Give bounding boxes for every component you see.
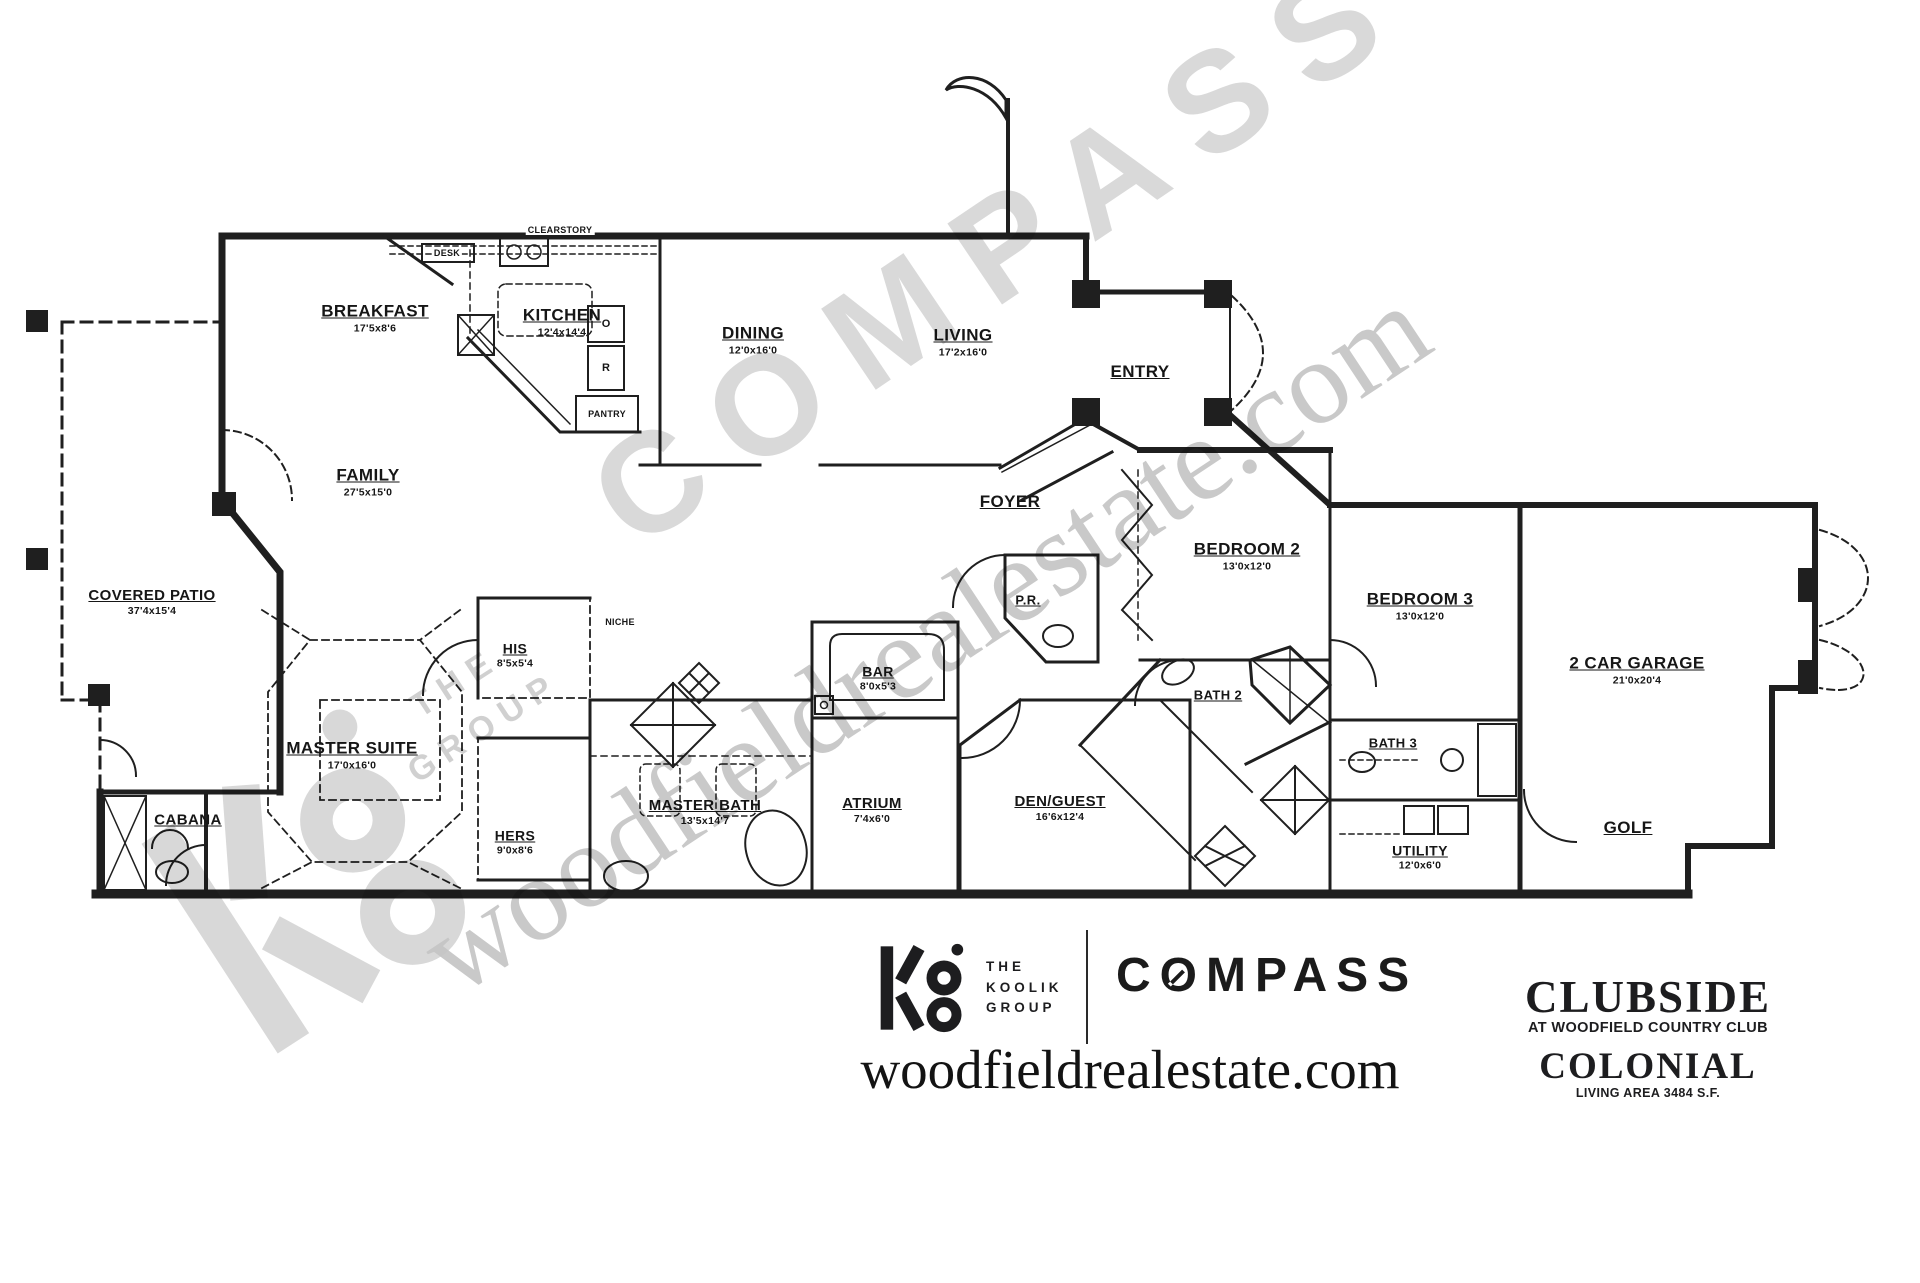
room-label-garage: 2 CAR GARAGE21'0x20'4 [1569,654,1704,687]
floorplan-page: BREAKFAST17'5x8'6 KITCHEN12'4x14'4 DININ… [0,0,1920,1283]
room-label-atrium: ATRIUM7'4x6'0 [842,795,902,825]
note-oven: O [602,318,611,330]
note-pantry: PANTRY [586,409,628,419]
compass-logo: COMPASS [1116,948,1418,1003]
bedroom3-walls [1330,505,1520,894]
model-name: COLONIAL [1468,1048,1828,1085]
room-label-entry: ENTRY [1111,362,1170,382]
room-label-master-bath: MASTER BATH13'5x14'7 [649,797,761,827]
master-bath-detail [590,663,815,894]
community-subtitle: AT WOODFIELD COUNTRY CLUB [1468,1020,1828,1036]
kitchen-detail [458,236,660,465]
living-area-text: LIVING AREA 3484 S.F. [1468,1086,1828,1100]
cabana-detail [100,792,206,894]
note-clearstory: CLEARSTORY [526,225,595,235]
room-label-foyer: FOYER [980,492,1041,512]
koolik-k8-icon [878,938,970,1038]
room-label-cabana: CABANA [154,812,221,829]
plan-title-block: CLUBSIDE AT WOODFIELD COUNTRY CLUB COLON… [1468,975,1828,1100]
room-label-bath2: BATH 2 [1194,688,1242,703]
room-label-covered-patio: COVERED PATIO37'4x15'4 [88,587,215,617]
note-desk: DESK [432,248,462,258]
bath2-detail [1080,647,1330,764]
community-name: CLUBSIDE [1468,975,1828,1020]
koolik-group-logo: THE KOOLIK GROUP [878,938,1063,1038]
room-label-utility: UTILITY12'0x6'0 [1392,843,1448,872]
room-label-his: HIS8'5x5'4 [497,641,533,670]
patio-boundary [62,322,222,792]
room-label-bedroom2: BEDROOM 213'0x12'0 [1194,540,1301,573]
room-label-living: LIVING17'2x16'0 [933,326,992,359]
room-label-kitchen: KITCHEN12'4x14'4 [523,306,601,339]
room-label-den-guest: DEN/GUEST16'6x12'4 [1014,793,1105,823]
flag-icon [946,78,1008,236]
brand-divider [1086,930,1088,1044]
room-label-family: FAMILY27'5x15'0 [336,466,399,499]
utility-detail [1340,790,1576,842]
room-label-pr: P.R. [1015,593,1040,608]
room-label-golf: GOLF [1604,818,1653,838]
wall-posts [26,280,1818,706]
room-label-master-suite: MASTER SUITE17'0x16'0 [286,739,417,772]
website-text: woodfieldrealestate.com [860,1038,1399,1101]
room-label-bath3: BATH 3 [1369,736,1417,751]
powder-room [953,555,1098,662]
room-label-bedroom3: BEDROOM 313'0x12'0 [1367,590,1474,623]
note-niche: NICHE [603,617,637,627]
room-label-hers: HERS9'0x8'6 [495,828,536,857]
room-label-breakfast: BREAKFAST17'5x8'6 [321,302,429,335]
room-label-bar: BAR8'0x5'3 [860,664,896,693]
room-label-dining: DINING12'0x16'0 [722,324,784,357]
note-range: R [602,362,610,374]
koolik-group-name: THE KOOLIK GROUP [986,957,1063,1020]
